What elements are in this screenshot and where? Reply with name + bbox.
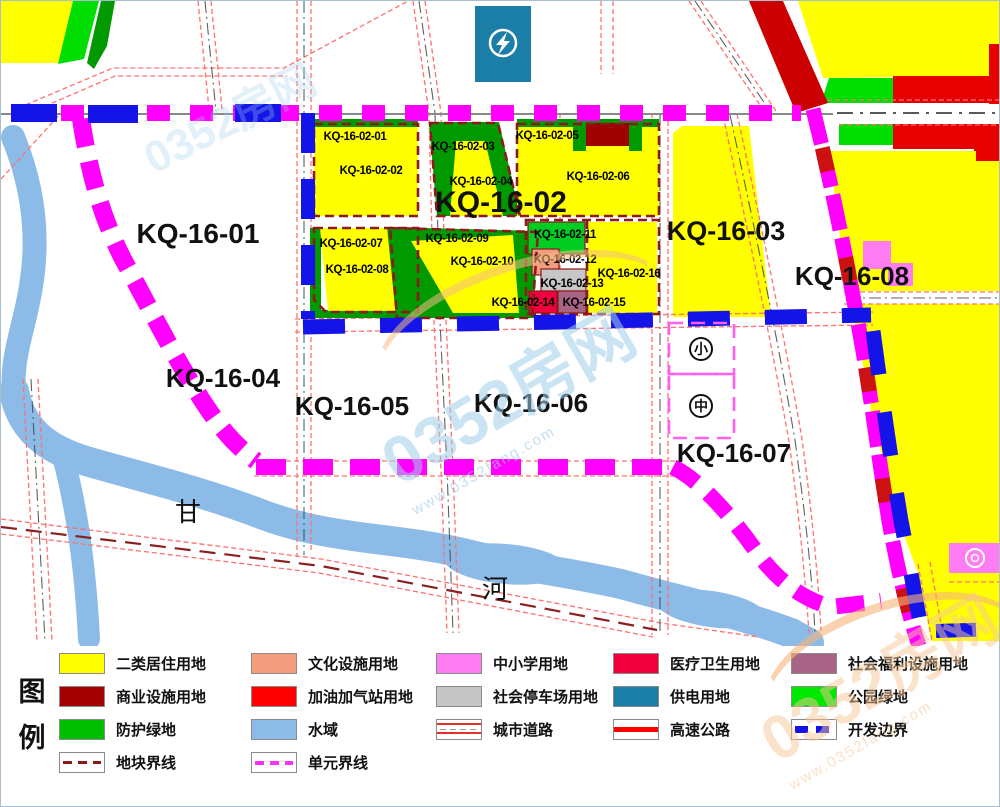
highway-swatch [613,719,659,740]
development-boundary-swatch [791,719,837,740]
legend: 图 例 二类居住用地 文化设施用地 中小学用地 医疗卫生用地 社会福利设施用地 … [1,646,1000,807]
svg-text:KQ-16-02-13: KQ-16-02-13 [541,278,604,290]
protective-green-swatch [59,719,105,740]
legend-item: 高速公路 [613,718,730,741]
svg-text:KQ-16-02-01: KQ-16-02-01 [324,131,388,143]
river-char-he: 河 [482,574,508,604]
legend-item: 公园绿地 [791,685,908,708]
svg-text:KQ-16-02-16: KQ-16-02-16 [598,268,661,280]
water-swatch [251,719,297,740]
legend-title-char: 图 [15,670,49,709]
legend-item: 加油加气站用地 [251,685,413,708]
legend-item: 单元界线 [251,751,368,774]
power-substation-parcel [475,6,531,82]
legend-item: 开发边界 [791,718,908,741]
label-kq-16-05: KQ-16-05 [295,391,409,421]
legend-item: 商业设施用地 [59,685,206,708]
power-swatch [613,686,659,707]
svg-text:中: 中 [694,398,708,414]
river-char-gan: 甘 [175,497,201,527]
culture-swatch [251,653,297,674]
welfare-swatch [791,653,837,674]
svg-text:KQ-16-02-05: KQ-16-02-05 [516,130,580,142]
svg-text:KQ-16-02-11: KQ-16-02-11 [534,229,597,241]
residential-swatch [59,653,105,674]
svg-text:KQ-16-02-02: KQ-16-02-02 [340,165,403,177]
legend-title-char: 例 [15,716,49,755]
label-kq-16-06: KQ-16-06 [474,388,588,418]
medical-swatch [613,653,659,674]
svg-text:KQ-16-02-08: KQ-16-02-08 [326,264,390,276]
svg-text:小: 小 [694,341,708,357]
legend-item: 文化设施用地 [251,652,398,675]
gas-station-swatch [251,686,297,707]
block-labels: KQ-16-01 KQ-16-02 KQ-16-03 KQ-16-04 KQ-1… [137,186,910,468]
legend-item: 供电用地 [613,685,730,708]
svg-text:KQ-16-02-15: KQ-16-02-15 [563,297,627,309]
unit-boundary-swatch [251,752,297,773]
legend-item: 社会停车场用地 [436,685,598,708]
svg-text:KQ-16-02-06: KQ-16-02-06 [567,171,630,183]
middle-school-icon: 中 [690,395,712,417]
svg-text:KQ-16-02-07: KQ-16-02-07 [320,238,383,250]
legend-item: 医疗卫生用地 [613,652,760,675]
parcel-boundary-swatch [59,752,105,773]
svg-text:KQ-16-02-03: KQ-16-02-03 [432,141,495,153]
svg-text:KQ-16-02-10: KQ-16-02-10 [451,256,514,268]
map-canvas: 小 中 KQ-16-01 KQ-16-02 KQ-16-03 KQ-16-04 … [1,1,1000,646]
legend-item: 中小学用地 [436,652,568,675]
park-green-swatch [791,686,837,707]
svg-text:KQ-16-02-12: KQ-16-02-12 [534,254,597,266]
legend-item: 城市道路 [436,718,553,741]
legend-item: 社会福利设施用地 [791,652,968,675]
label-kq-16-07: KQ-16-07 [677,438,791,468]
label-kq-16-02: KQ-16-02 [435,186,567,219]
urban-road-swatch [436,719,482,740]
planning-map-page: 小 中 KQ-16-01 KQ-16-02 KQ-16-03 KQ-16-04 … [0,0,1000,807]
parking-swatch [436,686,482,707]
school-swatch [436,653,482,674]
label-kq-16-08: KQ-16-08 [795,261,909,291]
legend-item: 防护绿地 [59,718,176,741]
label-kq-16-04: KQ-16-04 [166,363,281,393]
legend-item: 地块界线 [59,751,176,774]
legend-item: 二类居住用地 [59,652,206,675]
svg-text:KQ-16-02-04: KQ-16-02-04 [450,176,514,188]
svg-text:KQ-16-02-09: KQ-16-02-09 [426,233,489,245]
svg-text:KQ-16-02-14: KQ-16-02-14 [492,297,556,309]
elementary-school-icon: 小 [690,338,712,360]
label-kq-16-03: KQ-16-03 [667,216,786,246]
legend-item: 水域 [251,718,338,741]
label-kq-16-01: KQ-16-01 [137,218,260,249]
commerce-swatch [59,686,105,707]
